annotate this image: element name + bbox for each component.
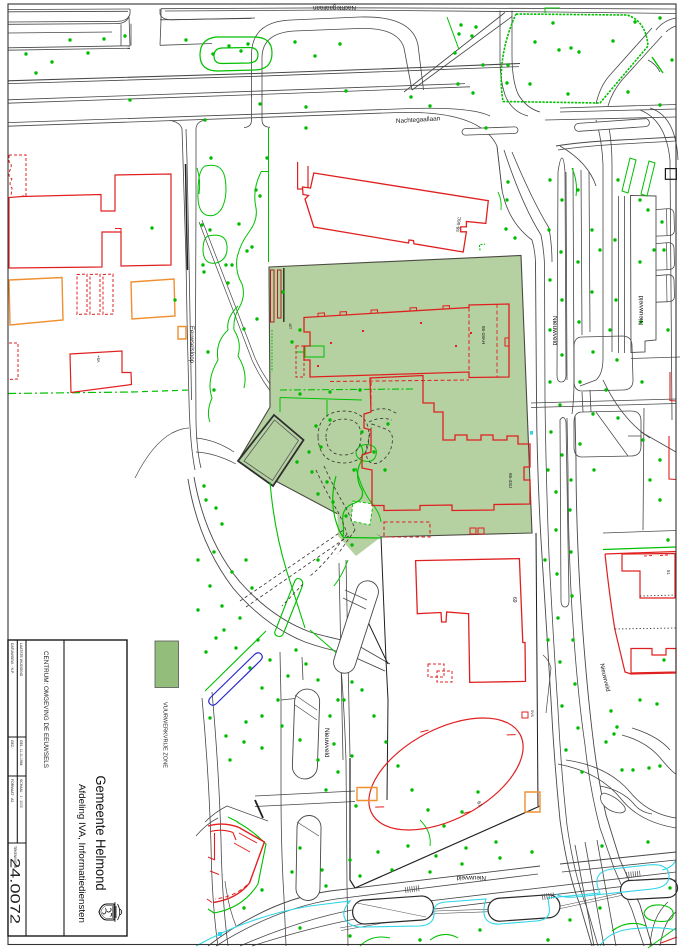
svg-text:Nieuwveld: Nieuwveld [456,874,486,881]
svg-text:GEZ.·: GEZ.· [10,740,14,749]
svg-text:Eeuwselsloop: Eeuwselsloop [188,326,194,364]
svg-text:51: 51 [666,570,671,575]
svg-text:CENTRUM: OMGEVING DE EEUWSE: CENTRUM: OMGEVING DE EEUWSELS [42,651,48,768]
svg-text:FORMAAT · A3: FORMAAT · A3 [10,779,14,802]
svg-text:DATUM/GEW. · N.P.: DATUM/GEW. · N.P. [10,643,14,674]
svg-text:SVS: SVS [530,710,534,718]
svg-text:48T: 48T [288,323,292,330]
svg-text:+6A: +6A [96,355,101,363]
svg-text:65-43U: 65-43U [508,473,513,488]
svg-text:69: 69 [511,597,517,603]
svg-text:Nachtegaallaan: Nachtegaallaan [312,4,356,11]
svg-text:LAATSTE WIJZIGING: LAATSTE WIJZIGING [19,643,23,677]
svg-text:24.0072: 24.0072 [8,858,24,924]
svg-text:Nieuwveld: Nieuwveld [638,295,645,325]
svg-text:Afdeling IVA, Informatiedienst: Afdeling IVA, Informatiediensten [77,784,87,923]
svg-text:GEL. 11-11-1984: GEL. 11-11-1984 [19,740,23,766]
svg-text:Gemeente Helmond: Gemeente Helmond [93,776,109,891]
svg-text:VUURWERKVRIJE ZONE: VUURWERKVRIJE ZONE [162,702,168,769]
svg-text:SCHAAL · 1 : 1000: SCHAAL · 1 : 1000 [19,779,23,808]
svg-text:Nieuwveld: Nieuwveld [323,728,330,758]
svg-text:65-18AH: 65-18AH [481,326,486,344]
svg-text:Nieuwveld: Nieuwveld [551,316,558,346]
